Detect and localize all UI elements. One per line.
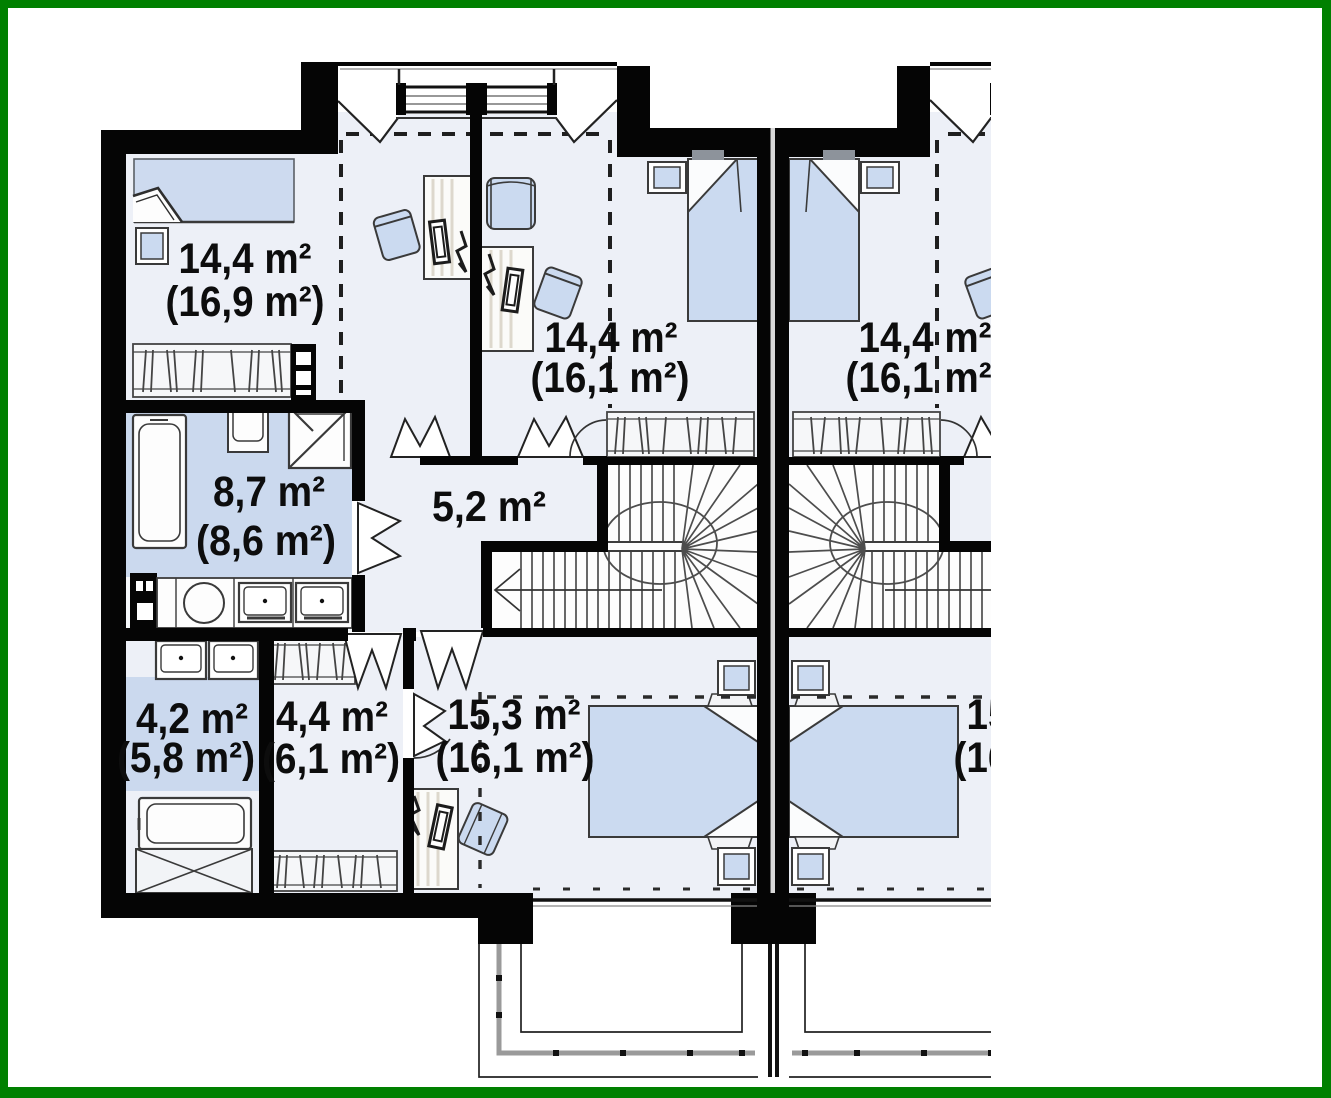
svg-text:(16,9 m²): (16,9 m²) <box>166 278 325 326</box>
svg-text:(16,1 m²): (16,1 m²) <box>531 354 690 402</box>
svg-text:8,7 m²: 8,7 m² <box>213 468 325 516</box>
svg-text:14,4 m²: 14,4 m² <box>179 235 312 283</box>
svg-text:15,3 m²: 15,3 m² <box>448 691 581 739</box>
svg-text:(5,8 m²): (5,8 m²) <box>117 734 255 782</box>
svg-text:(16,1 m²): (16,1 m²) <box>436 734 595 782</box>
svg-text:(8,6 m²): (8,6 m²) <box>196 517 336 565</box>
svg-text:4,4 m²: 4,4 m² <box>276 693 388 741</box>
svg-text:(16,1 m²): (16,1 m²) <box>846 354 1005 402</box>
svg-text:(6,1 m²): (6,1 m²) <box>262 735 400 783</box>
svg-text:5,2 m²: 5,2 m² <box>432 483 546 531</box>
